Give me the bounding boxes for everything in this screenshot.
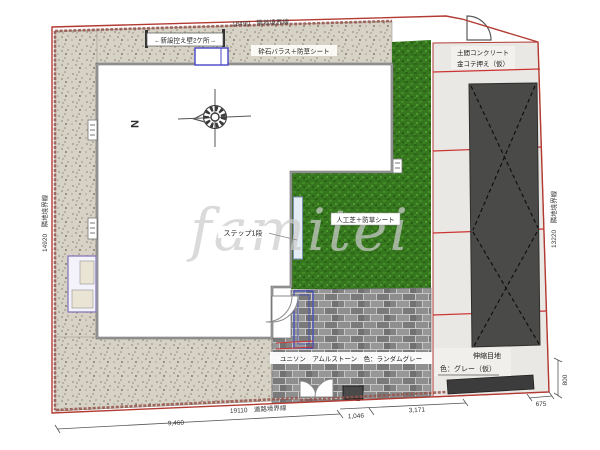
label-joint-line2: 色：グレー（仮） — [440, 364, 496, 373]
label-concrete: 土間コンクリート 金コテ押え（仮） — [451, 46, 515, 69]
dim-side: 675 — [536, 401, 547, 408]
dim-left-boundary: 14920 隣地境界線 — [40, 194, 49, 252]
label-joint-line1: 伸縮目地 — [473, 351, 501, 360]
gate-door-arc-icon — [467, 16, 491, 40]
compass-north-label: N — [128, 120, 140, 128]
label-grass-text: 人工芝＋防草シート — [336, 215, 395, 224]
dim-entrance: 1,046 — [348, 413, 365, 421]
meter-box-lower — [88, 218, 97, 239]
entrance-storage-box — [343, 386, 363, 401]
dim-approach: 3,171 — [409, 407, 426, 415]
dim-right-boundary: 13220 隣地境界線 — [549, 190, 558, 248]
label-concrete-line2: 金コテ押え（仮） — [457, 59, 509, 68]
concrete-area — [433, 42, 549, 397]
meter-box-east — [393, 159, 402, 173]
label-grass: 人工芝＋防草シート — [331, 213, 400, 225]
dim-front-width: 9,460 — [168, 420, 185, 428]
label-paver-text: ユニソン アムルストーン 色：ランダムグレー — [280, 354, 422, 363]
meter-box-upper — [88, 120, 97, 140]
label-paver: ユニソン アムルストーン 色：ランダムグレー — [270, 352, 432, 364]
label-gravel-text: 砕石バラス＋防草シート — [258, 47, 329, 56]
site-plan-drawing: N famitei ←新設控え壁2ケ所→ 砕石バラス＋防草シート 土間コンクリー… — [0, 0, 600, 450]
label-retaining-wall: ←新設控え壁2ケ所→ — [147, 33, 223, 46]
gate-panel — [195, 48, 228, 65]
dim-depth: 800 — [562, 374, 569, 385]
equipment-pad — [68, 256, 96, 312]
label-retaining-wall-text: ←新設控え壁2ケ所→ — [154, 36, 216, 45]
label-joint: 伸縮目地 色：グレー（仮） — [434, 348, 511, 376]
label-gravel: 砕石バラス＋防草シート — [251, 45, 337, 56]
label-concrete-line1: 土間コンクリート — [457, 48, 509, 57]
label-step-text: ステップ1段 — [224, 229, 263, 238]
